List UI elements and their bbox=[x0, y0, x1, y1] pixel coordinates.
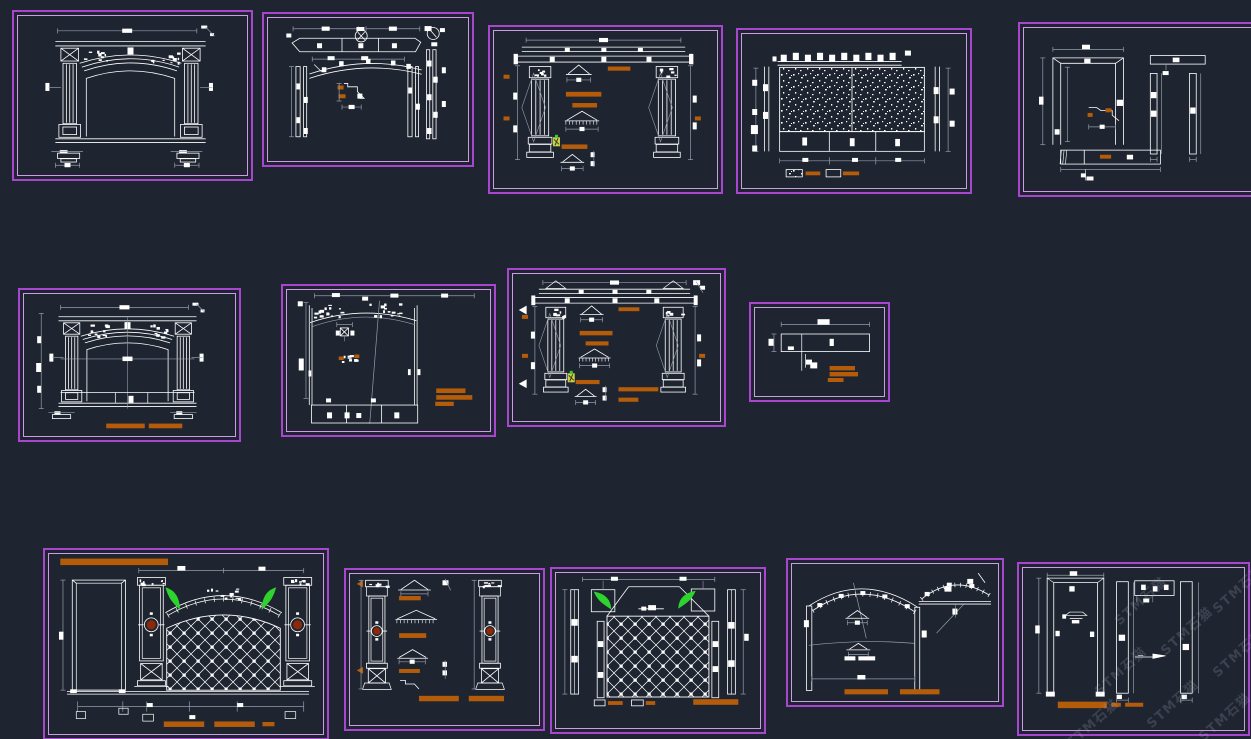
drawing-panel-pilaster-pair-details bbox=[344, 568, 545, 731]
drawing-panel-door-frame-members bbox=[1018, 22, 1251, 197]
drawing-panel-arch-frame-construction bbox=[262, 12, 474, 167]
drawing-panel-stone-cladding-panel bbox=[736, 28, 972, 194]
panel-drawing-k bbox=[352, 576, 533, 719]
drawing-panel-lattice-wall-panel bbox=[550, 567, 766, 734]
drawing-panel-door-jamb-elevation bbox=[1017, 562, 1250, 736]
drawing-panel-fireplace-column-details bbox=[507, 268, 726, 427]
panel-drawing-n bbox=[1025, 570, 1238, 724]
drawing-panel-beam-detail bbox=[749, 302, 890, 402]
cad-sheet-canvas: STM石猫STM石猫STM石猫STM石猫STM石猫STM石猫STM石猫STM石猫 bbox=[0, 0, 1251, 739]
drawing-panel-arch-portal-elevation-dimensioned bbox=[18, 288, 241, 442]
panel-drawing-l bbox=[558, 575, 754, 722]
panel-drawing-m bbox=[794, 566, 992, 695]
panel-drawing-h bbox=[515, 276, 714, 415]
drawing-panel-arch-panel-elevation bbox=[281, 284, 496, 437]
panel-drawing-d bbox=[744, 36, 960, 182]
drawing-panel-feature-wall-elevation bbox=[43, 548, 329, 739]
panel-drawing-g bbox=[289, 292, 484, 425]
drawing-panel-arch-segment-details bbox=[786, 558, 1004, 707]
panel-drawing-b bbox=[270, 20, 462, 155]
drawing-panel-column-assembly-details bbox=[488, 25, 723, 194]
panel-drawing-c bbox=[496, 33, 711, 182]
drawing-panel-arch-portal-elevation bbox=[12, 10, 253, 181]
panel-drawing-i bbox=[757, 310, 878, 390]
panel-drawing-f bbox=[26, 296, 229, 430]
panel-drawing-a bbox=[20, 18, 241, 169]
panel-drawing-j bbox=[51, 556, 317, 728]
panel-drawing-e bbox=[1026, 30, 1250, 185]
